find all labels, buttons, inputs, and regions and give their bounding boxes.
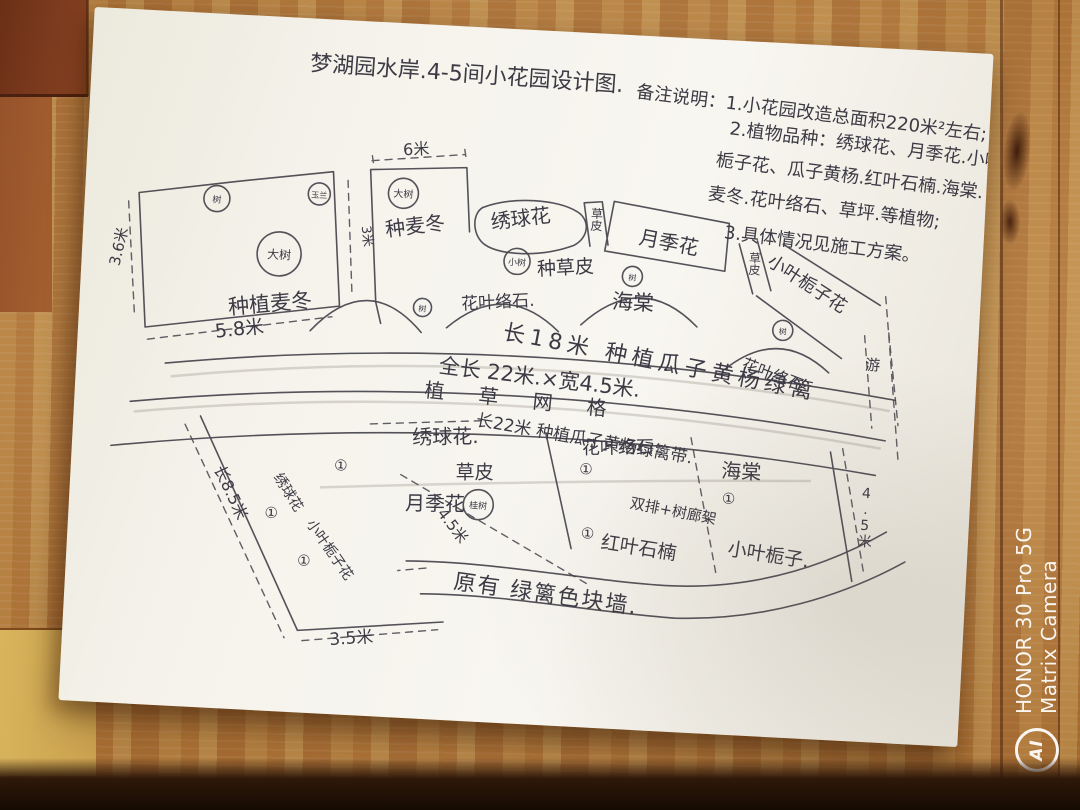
annotation-old-wall: 原有 绿篱色块墙. [452, 570, 640, 621]
path-character: 游 [865, 356, 881, 375]
circle-one: ① [579, 460, 593, 479]
small-tree-label: 小树 [508, 256, 527, 269]
watermark-line1: HONOR 30 Pro 5G [1012, 527, 1037, 714]
dim-5-8m: 5.8米 [214, 316, 265, 343]
big-tree-label: 大树 [393, 187, 414, 201]
area-yueji-mid: 月季花 [405, 491, 465, 516]
sketch-title: 梦湖园水岸.4-5间小花园设计图. [309, 51, 624, 98]
area-luoshi-mid: 花叶络石. [582, 437, 660, 459]
circle-one: ① [334, 456, 348, 475]
dim-8-5m: 长8.5米 [210, 462, 252, 522]
wood-knot [1000, 200, 1020, 244]
tree-circle-label: 树 [418, 303, 427, 313]
strip-caopi: 草皮 [747, 251, 762, 277]
circle-one: ① [264, 504, 278, 523]
dim-3m: 3米 [358, 225, 375, 248]
area-caopi-plant: 种草皮 [536, 255, 594, 280]
floor-shadow-band [0, 758, 1080, 810]
area-haitang-top: 海棠 [611, 289, 654, 315]
dim-6m: 6米 [403, 139, 430, 159]
area-zhizi-left: 小叶栀子花 [303, 517, 356, 584]
area-luoshi-top: 花叶络石. [461, 291, 535, 315]
area-zhizi-mid: 小叶栀子. [726, 538, 810, 573]
paper-sheet: 树 玉兰 大树 大树 树 小树 树 树 桂树 ① ① [58, 7, 993, 747]
dim-3-5m: 3.5米 [329, 627, 374, 650]
area-xiuqiu-top: 绣球花 [489, 203, 551, 234]
area-yueji-top: 月季花 [637, 225, 700, 260]
tree-circle-label: 树 [212, 193, 222, 205]
wood-plank-dark-topleft [0, 0, 88, 97]
area-haitang-mid: 海棠 [721, 458, 762, 484]
yulan-circle-label: 玉兰 [311, 190, 328, 201]
big-tree-label: 大树 [267, 246, 292, 262]
area-maidong: 种麦冬 [384, 210, 446, 241]
dim-3-6m: 3.6米 [106, 226, 132, 268]
photo-scene: 树 玉兰 大树 大树 树 小树 树 树 桂树 ① ① [0, 0, 1080, 810]
wood-plank-left [0, 97, 52, 312]
camera-watermark: AI HONOR 30 Pro 5G Matrix Camera [1006, 502, 1068, 772]
strip-caopi: 草皮 [589, 207, 604, 233]
watermark-text: HONOR 30 Pro 5G Matrix Camera [1012, 527, 1062, 714]
dim-4-5m-right: 4.5米 [856, 486, 875, 549]
wood-seam [1000, 0, 1003, 810]
circle-one: ① [580, 524, 594, 543]
area-xiuqiu-mid: 绣球花. [412, 424, 479, 449]
gui-tree-label: 桂树 [469, 499, 488, 512]
lower-plan-labels: 绣球花 小叶栀子花 绣球花. 草皮 月季花 花叶络石. 海棠 双排+树廊架 红叶… [264, 413, 817, 629]
tree-circle-label: 树 [628, 272, 637, 282]
area-zhizi-top: 小叶栀子花 [763, 251, 850, 318]
annotation-pergola: 双排+树廊架 [629, 494, 718, 528]
area-caopi-mid: 草皮 [456, 461, 494, 483]
circle-one: ① [297, 551, 311, 570]
wood-seam [86, 0, 89, 96]
sketch-svg: 树 玉兰 大树 大树 树 小树 树 树 桂树 ① ① [58, 7, 993, 747]
area-hongye: 红叶石楠 [599, 531, 678, 565]
tree-circle-label: 树 [778, 326, 787, 336]
watermark-line2: Matrix Camera [1037, 527, 1062, 714]
area-maidong-plant: 种植麦冬 [227, 288, 313, 319]
circle-one: ① [721, 489, 735, 508]
